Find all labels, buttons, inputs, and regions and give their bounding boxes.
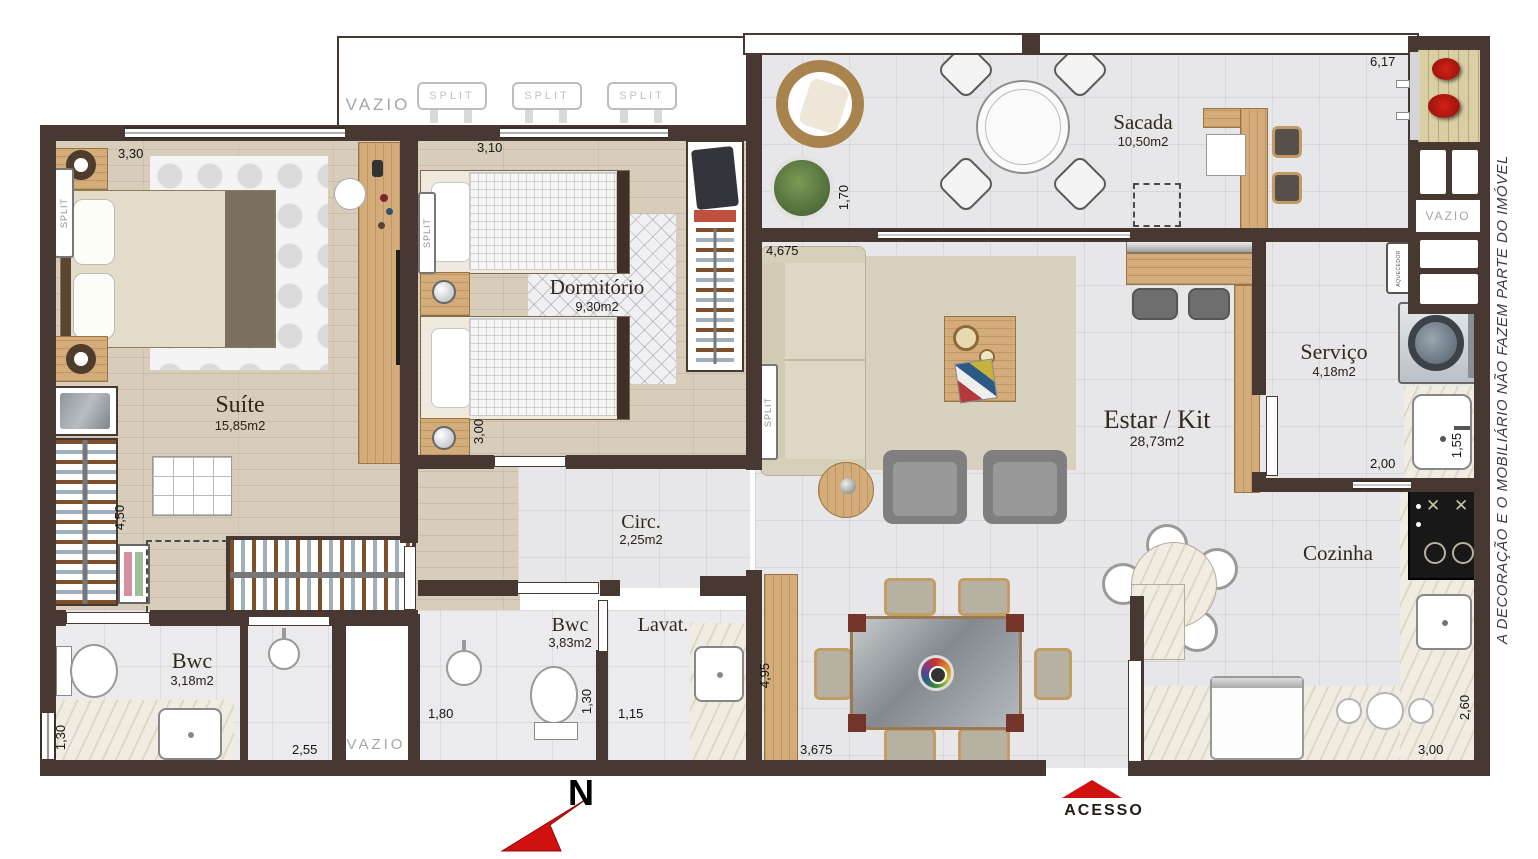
- condenser-leg: [525, 110, 533, 123]
- dorm-wardrobe: [686, 140, 744, 372]
- split-label: SPLIT: [619, 90, 665, 102]
- room-name: Sacada: [1113, 110, 1172, 134]
- dim-estar-bottom: 3,675: [800, 742, 833, 757]
- suite-lamp: [66, 344, 96, 374]
- remote-control: [372, 160, 383, 177]
- room-label-bwc-suite: Bwc 3,18m2: [132, 649, 252, 688]
- bathroom-sink: [158, 708, 222, 760]
- fridge: [1210, 676, 1304, 760]
- pass-counter: [1126, 253, 1258, 285]
- dining-table: [850, 616, 1022, 730]
- suite-bed: [60, 190, 276, 348]
- reserved-area-dashed: [1133, 183, 1181, 227]
- wall-bwc2-top: [418, 580, 518, 596]
- dorm-bed-1: [420, 170, 630, 274]
- door-bwc-suite: [66, 612, 150, 624]
- door-servico: [1266, 396, 1278, 476]
- dim-cozinha-depth: 2,60: [1457, 695, 1472, 720]
- shaft-vent: [1420, 274, 1478, 304]
- plate: [1366, 692, 1404, 730]
- armchair: [883, 450, 967, 524]
- drain: [1442, 620, 1448, 626]
- counter-stool: [1132, 288, 1178, 320]
- condenser-leg: [430, 110, 438, 123]
- shower-arm: [462, 640, 466, 652]
- wall-suite-bottom: [40, 610, 66, 626]
- condenser-leg: [620, 110, 628, 123]
- room-label-circulacao: Circ. 2,25m2: [581, 511, 701, 548]
- burner-grate: ✕: [1454, 496, 1468, 516]
- books: [124, 552, 132, 596]
- burner-ring: [1452, 542, 1474, 564]
- grill-tick: [1396, 80, 1410, 88]
- split-condenser: SPLIT: [417, 82, 487, 110]
- grill-flowers: [1432, 58, 1460, 80]
- water-heater-label: AQUECEDOR: [1396, 250, 1402, 287]
- shaft-vazio-box: VAZIO: [1416, 200, 1480, 232]
- split-unit-suite: SPLIT: [54, 168, 74, 258]
- room-label-dormitorio: Dormitório 9,30m2: [517, 276, 677, 314]
- plant: [770, 156, 834, 220]
- dim-estar-depth: 4,95: [757, 663, 772, 688]
- wall-dorm-bottom: [418, 455, 494, 469]
- folded-clothes: [60, 393, 110, 429]
- decor-item: [378, 222, 385, 229]
- drain: [1440, 436, 1446, 442]
- vazio-label-bottom: VAZIO: [334, 736, 418, 753]
- coffee-table: [944, 316, 1016, 402]
- split-label: SPLIT: [429, 90, 475, 102]
- shaft-vent: [1420, 150, 1446, 194]
- dim-bwc-suite-depth: 1,30: [53, 725, 68, 750]
- decor-dish: [334, 178, 366, 210]
- dim-lavat-width: 1,15: [618, 706, 643, 721]
- burner-grate: ✕: [1426, 496, 1440, 516]
- dim-shower-width: 2,55: [292, 742, 317, 757]
- suite-garment-shelf: [52, 386, 118, 436]
- kitchen-sink: [1416, 594, 1472, 650]
- shower-arm: [282, 628, 286, 640]
- window-sacada-estar: [878, 230, 1130, 240]
- bed-footboard: [617, 171, 629, 273]
- dim-bwc-social-width: 1,80: [428, 706, 453, 721]
- north-label: N: [568, 772, 594, 814]
- door-dormitorio: [494, 456, 566, 467]
- vazio-label: VAZIO: [1425, 209, 1470, 223]
- bed-blanket: [225, 191, 275, 347]
- room-name: Bwc: [552, 614, 589, 636]
- door-bwc-social: [517, 582, 599, 594]
- disclaimer-note: A DECORAÇÃO E O MOBILIÁRIO NÃO FAZEM PAR…: [1494, 120, 1511, 644]
- suite-wardrobe-rail: [52, 438, 118, 606]
- side-table-decor: [840, 478, 856, 494]
- egg-chair-cushion: [798, 77, 851, 135]
- toilet-tank: [534, 722, 578, 740]
- door-suite: [404, 546, 416, 610]
- bed-quilt: [469, 318, 617, 416]
- room-area: 4,18m2: [1254, 365, 1414, 380]
- knob: [1416, 504, 1421, 509]
- split-label: SPLIT: [763, 397, 773, 427]
- dim-servico-width: 2,00: [1370, 456, 1395, 471]
- room-label-estar: Estar / Kit 28,73m2: [1047, 405, 1267, 450]
- closet-boundary-dashed: [146, 540, 228, 612]
- fridge-top: [1212, 678, 1302, 688]
- wardrobe-shelf-red: [694, 210, 736, 222]
- room-name: Serviço: [1300, 339, 1367, 364]
- split-condenser: SPLIT: [512, 82, 582, 110]
- room-name: Estar / Kit: [1104, 405, 1211, 434]
- suite-closet: [226, 536, 416, 614]
- dim-dorm-width: 3,10: [477, 140, 502, 155]
- access-label: ACESSO: [1048, 802, 1160, 820]
- balcony-table: [976, 80, 1070, 174]
- door-entry: [1128, 660, 1142, 762]
- room-label-suite: Suíte 15,85m2: [160, 392, 320, 433]
- balcony-stool: [1272, 172, 1302, 204]
- room-area: 10,50m2: [1073, 135, 1213, 150]
- room-name: Cozinha: [1303, 541, 1373, 565]
- dining-chair: [814, 648, 852, 700]
- split-label: SPLIT: [59, 198, 69, 228]
- drain: [717, 672, 723, 678]
- plate: [1336, 698, 1362, 724]
- table-corner: [1006, 714, 1024, 732]
- shower-sliding-door: [248, 616, 330, 626]
- faucet: [1454, 426, 1470, 430]
- wall-bwc2-top: [600, 580, 620, 596]
- room-area: 15,85m2: [160, 419, 320, 434]
- knob: [1416, 522, 1421, 527]
- bed-footboard: [617, 317, 629, 419]
- split-unit-dorm: SPLIT: [418, 192, 436, 274]
- vazio-label-top: VAZIO: [338, 95, 418, 115]
- cooktop: ✕ ✕: [1408, 490, 1482, 580]
- shaft-vent: [1452, 150, 1478, 194]
- dining-chair: [884, 578, 936, 616]
- wall-bwc2-lavat: [596, 650, 608, 762]
- table-corner: [1006, 614, 1024, 632]
- plate: [1408, 698, 1434, 724]
- floor-plan: SPLIT SPLIT: [0, 0, 1538, 859]
- wall-right-outer: [1474, 314, 1490, 776]
- bed-pillow: [431, 182, 471, 262]
- dim-sacada-depth: 1,70: [836, 185, 851, 210]
- window-servico: [1353, 480, 1411, 490]
- room-area: 3,83m2: [510, 636, 630, 651]
- access-arrow-icon: [1062, 780, 1122, 798]
- dim-suite-width: 3,30: [118, 146, 143, 161]
- condenser-leg: [559, 110, 567, 123]
- balcony-parapet: [743, 33, 1419, 55]
- toilet-bowl: [70, 644, 118, 698]
- shower-head: [446, 650, 482, 686]
- centerpiece: [918, 655, 954, 691]
- counter-stool: [1188, 288, 1230, 320]
- split-label: SPLIT: [422, 218, 432, 248]
- table-corner: [848, 614, 866, 632]
- room-name: Lavat.: [638, 614, 689, 636]
- dim-cozinha-width: 3,00: [1418, 742, 1443, 757]
- lavatory-sink: [694, 646, 744, 702]
- room-name: Bwc: [172, 648, 212, 673]
- dim-suite-depth: 4,50: [112, 505, 127, 530]
- wall-suite-divider: [400, 125, 418, 543]
- bed-pillow: [73, 199, 115, 265]
- dim-bwc-social-depth: 1,30: [579, 689, 594, 714]
- shaft-vent: [1420, 240, 1478, 268]
- room-name: Dormitório: [550, 275, 645, 299]
- window-suite: [125, 127, 345, 139]
- condenser-leg: [464, 110, 472, 123]
- room-label-lavatorio: Lavat.: [603, 614, 723, 636]
- dorm-lamp: [432, 426, 456, 450]
- dining-chair: [1034, 648, 1072, 700]
- washer-door: [1408, 315, 1464, 371]
- wall-lavat-top: [700, 576, 748, 596]
- window-dorm: [500, 127, 668, 139]
- balcony-table-ring: [985, 89, 1061, 165]
- tray: [953, 325, 979, 351]
- pass-counter-top: [1126, 241, 1258, 253]
- shower-head: [268, 638, 300, 670]
- grill-tick: [1396, 112, 1410, 120]
- wall-dorm-right: [746, 55, 762, 470]
- toilet-bowl: [530, 666, 578, 724]
- balcony-stool: [1272, 126, 1302, 158]
- armchair-seat: [993, 462, 1057, 516]
- split-condenser: SPLIT: [607, 82, 677, 110]
- armchair: [983, 450, 1067, 524]
- dorm-bed-2: [420, 316, 630, 420]
- parapet-post: [1022, 33, 1040, 55]
- room-name: Circ.: [621, 511, 660, 533]
- magazine: [954, 359, 997, 404]
- wall-bottom-outer: [1128, 760, 1490, 776]
- centerpiece-core: [929, 666, 947, 684]
- wardrobe-rail: [696, 228, 734, 364]
- armchair-seat: [893, 462, 957, 516]
- wall-bwc-divider: [240, 626, 248, 760]
- dim-estar-width: 4,675: [766, 243, 799, 258]
- room-name: Suíte: [215, 392, 264, 418]
- dim-dorm-depth: 3,00: [471, 419, 486, 444]
- room-area: 28,73m2: [1047, 434, 1267, 450]
- wall-dorm-bottom: [566, 455, 746, 469]
- wall-bottom-outer: [40, 760, 1046, 776]
- condenser-leg: [654, 110, 662, 123]
- room-area: 3,18m2: [132, 674, 252, 689]
- bed-quilt: [469, 172, 617, 270]
- wall-left-outer: [40, 125, 56, 776]
- decor-item: [386, 208, 393, 215]
- table-corner: [848, 714, 866, 732]
- books: [135, 552, 143, 596]
- egg-chair: [776, 60, 864, 148]
- bed-pillow: [431, 328, 471, 408]
- room-area: 2,25m2: [581, 533, 701, 548]
- dining-chair: [958, 578, 1010, 616]
- grill-flowers: [1428, 94, 1460, 118]
- burner-ring: [1424, 542, 1446, 564]
- dorm-lamp: [432, 280, 456, 304]
- room-label-cozinha: Cozinha: [1258, 542, 1418, 566]
- hanging-jacket: [691, 146, 739, 210]
- grill-marble-edge: [1410, 52, 1420, 140]
- drain: [188, 732, 194, 738]
- bed-pillow: [73, 273, 115, 339]
- sofa-cushion-line: [785, 359, 865, 361]
- decor-item: [380, 194, 388, 202]
- dim-tanque-depth: 1,55: [1449, 433, 1464, 458]
- room-label-servico: Serviço 4,18m2: [1254, 340, 1414, 379]
- room-area: 9,30m2: [517, 300, 677, 315]
- room-label-sacada: Sacada 10,50m2: [1073, 111, 1213, 149]
- dim-sacada-width: 6,17: [1370, 54, 1395, 69]
- split-label: SPLIT: [524, 90, 570, 102]
- suite-dresser: [152, 456, 232, 516]
